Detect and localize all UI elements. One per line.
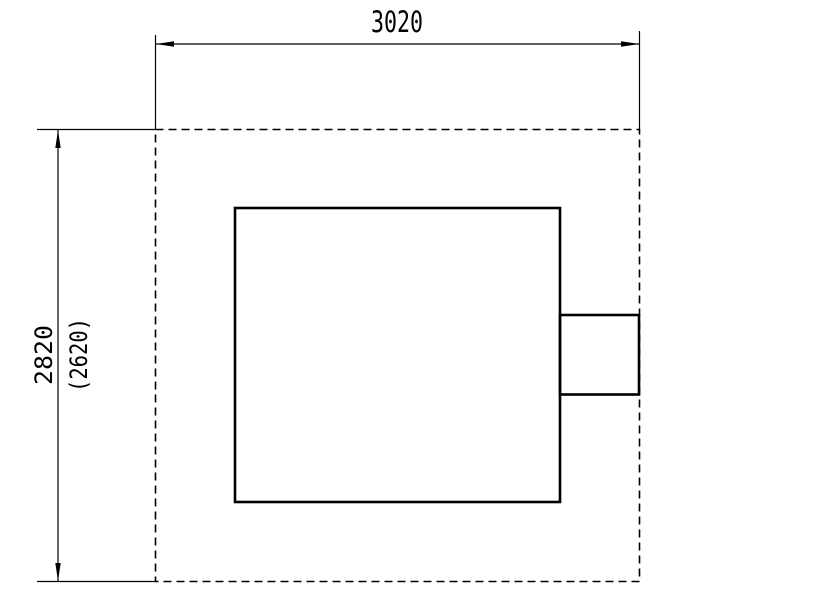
- dim-label-height-alt: (2620): [65, 318, 93, 392]
- main-body-rect: [235, 208, 560, 502]
- arrowhead-down-icon: [55, 563, 60, 581]
- arrowhead-left-icon: [156, 41, 174, 46]
- protrusion-rect: [560, 315, 639, 395]
- cad-drawing-canvas: 3020 2820 (2620): [0, 0, 840, 604]
- dim-label-width: 3020: [371, 5, 423, 39]
- drawing-svg: 3020 2820 (2620): [0, 0, 840, 604]
- dashed-boundary-rect: [156, 130, 640, 582]
- dim-label-height: 2820: [30, 325, 58, 385]
- arrowhead-right-icon: [621, 41, 639, 46]
- arrowhead-up-icon: [55, 130, 60, 148]
